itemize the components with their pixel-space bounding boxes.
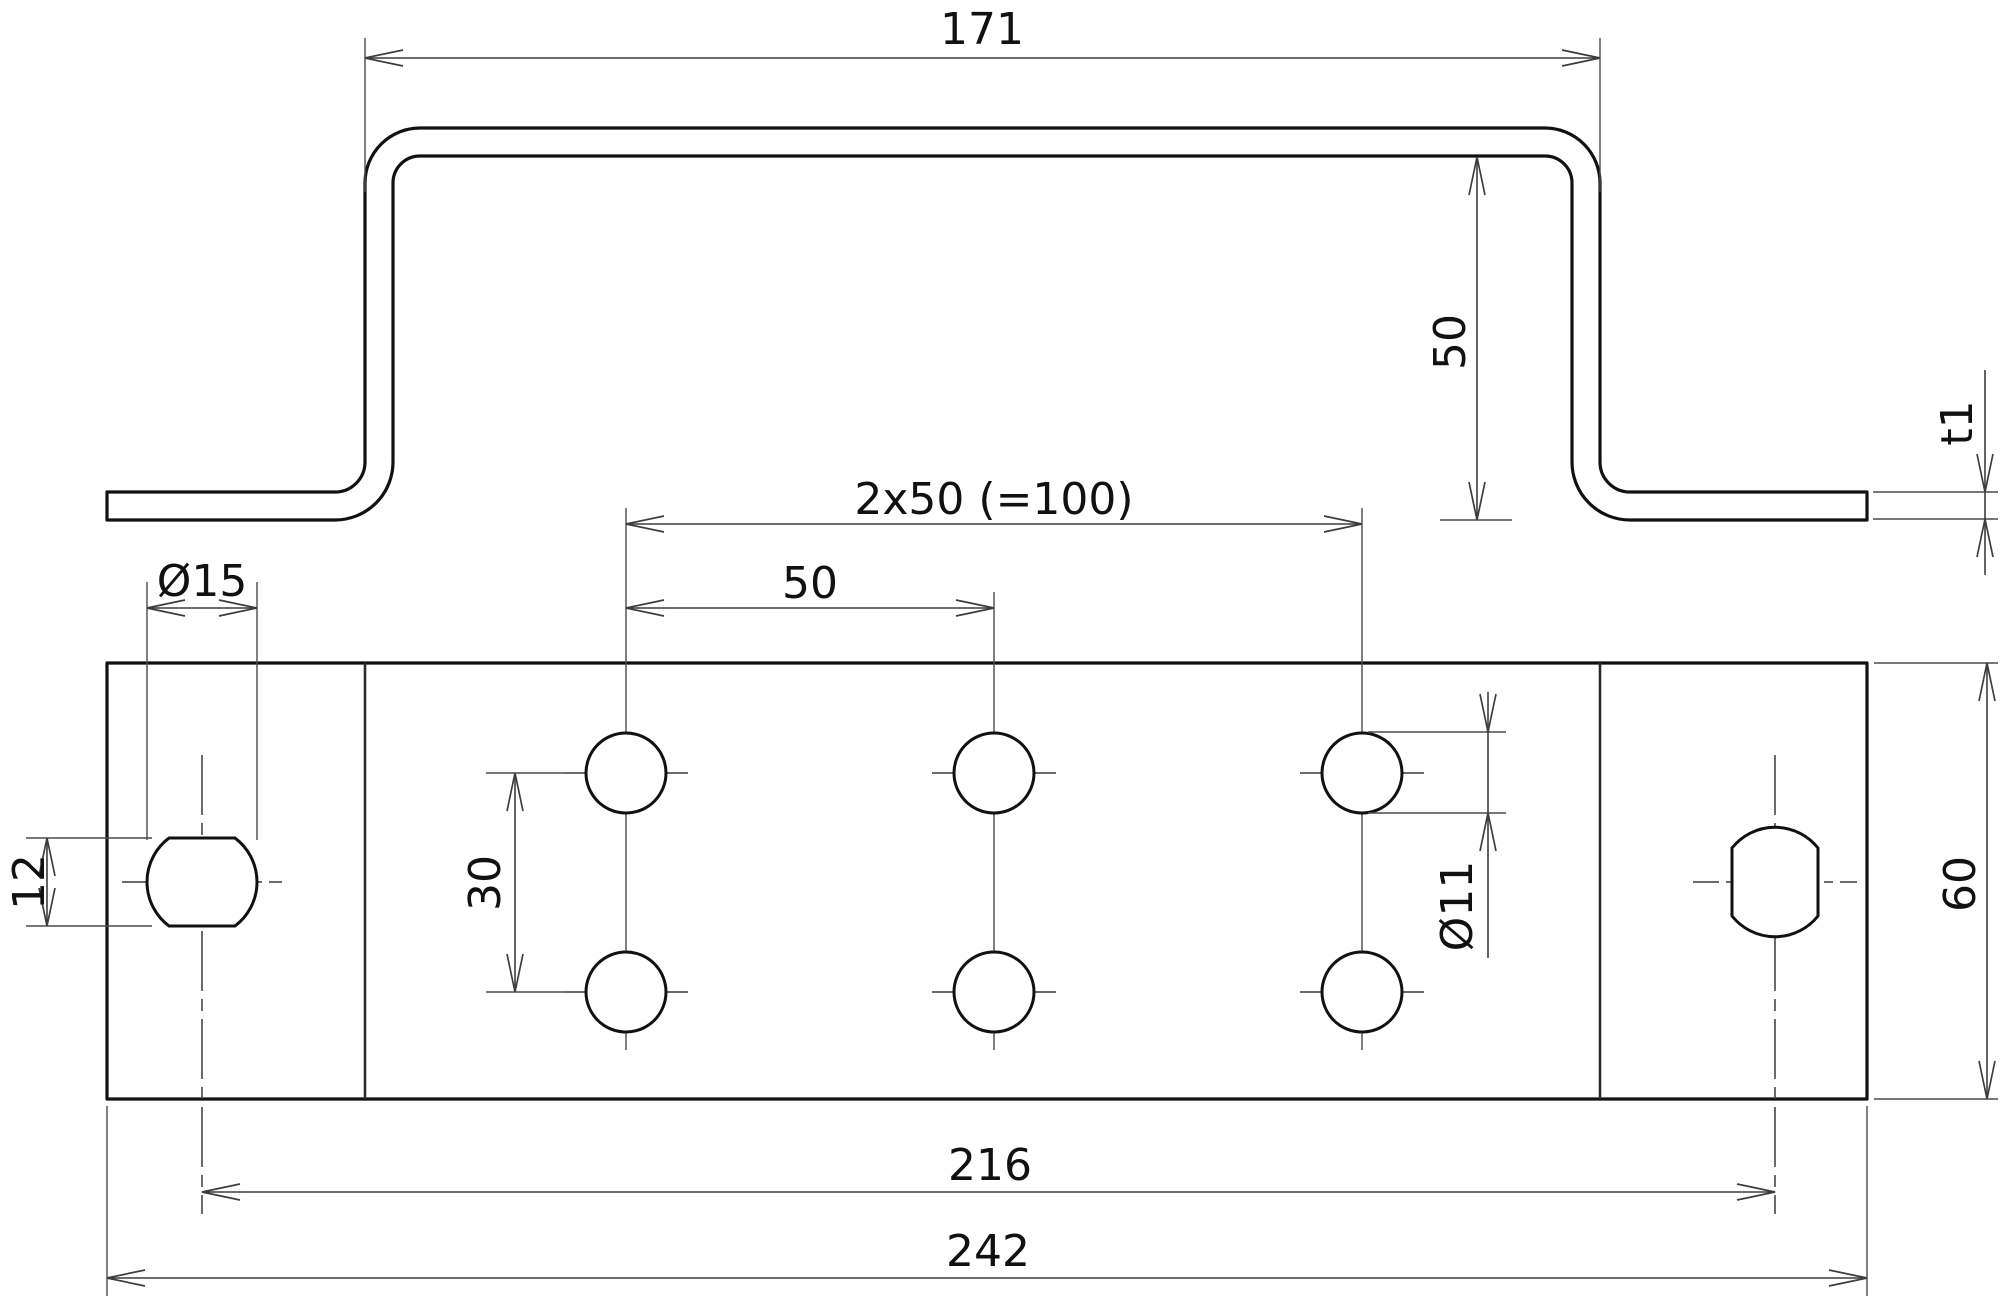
bolt-hole bbox=[586, 733, 666, 813]
technical-drawing-canvas: 171 50 t1 bbox=[0, 0, 2000, 1303]
dim-171-label: 171 bbox=[940, 4, 1024, 55]
dim-242-label: 242 bbox=[946, 1226, 1030, 1277]
dim-50-height-label: 50 bbox=[1425, 314, 1476, 370]
dim-dia15-label: Ø15 bbox=[157, 556, 248, 607]
dim-50-spacing-label: 50 bbox=[782, 558, 838, 609]
dim-60-label: 60 bbox=[1935, 856, 1986, 912]
bolt-hole bbox=[954, 733, 1034, 813]
end-hole-right bbox=[1732, 827, 1818, 936]
drawing-background bbox=[0, 0, 2000, 1303]
bolt-hole bbox=[1322, 952, 1402, 1032]
base-plate-outline bbox=[107, 663, 1867, 1099]
dim-30-label: 30 bbox=[460, 855, 511, 911]
end-hole-left bbox=[147, 838, 257, 926]
dim-t1-label: t1 bbox=[1932, 400, 1983, 445]
dim-2x50-label: 2x50 (=100) bbox=[854, 474, 1133, 525]
bolt-hole bbox=[586, 952, 666, 1032]
dim-216-label: 216 bbox=[948, 1140, 1032, 1191]
bolt-hole bbox=[1322, 733, 1402, 813]
dim-12-label: 12 bbox=[4, 854, 55, 910]
dim-dia11-label: Ø11 bbox=[1432, 861, 1483, 952]
bolt-hole bbox=[954, 952, 1034, 1032]
